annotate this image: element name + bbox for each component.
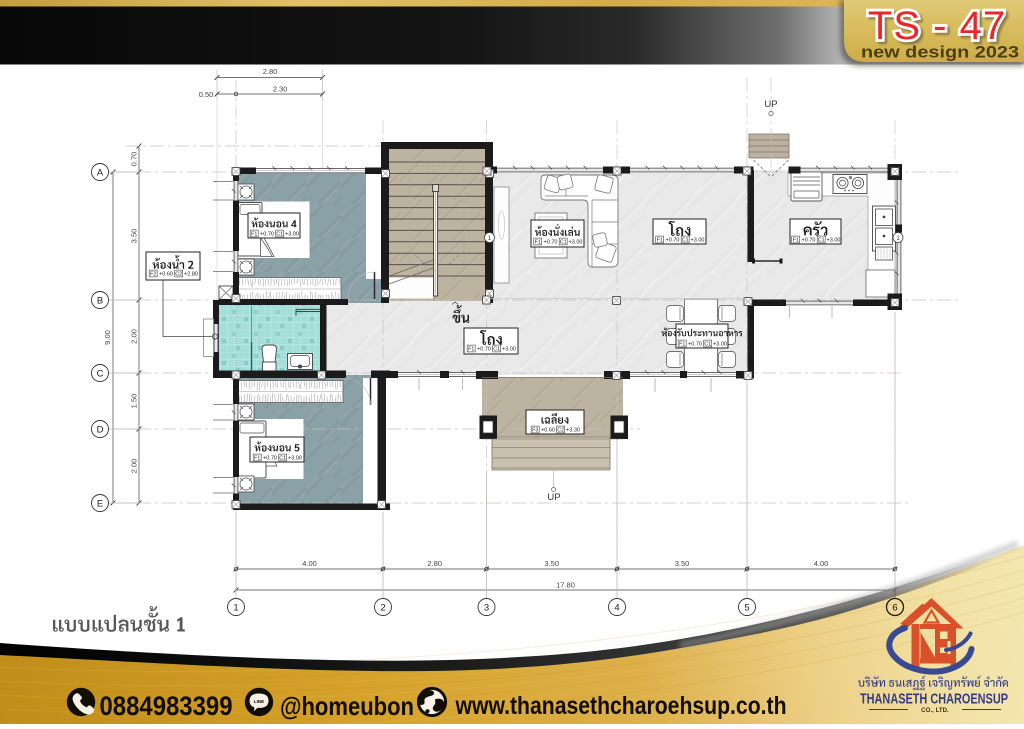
svg-text:+3.00: +3.00 (691, 238, 705, 244)
svg-text:+0.70: +0.70 (260, 232, 274, 238)
svg-text:+0.70: +0.70 (477, 347, 491, 353)
svg-text:+3.00: +3.00 (502, 347, 516, 353)
svg-text:F2: F2 (150, 272, 156, 278)
svg-text:C2: C2 (557, 428, 564, 434)
svg-text:@homeubon: @homeubon (280, 691, 414, 721)
svg-text:4: 4 (614, 602, 619, 613)
svg-text:+3.00: +3.00 (288, 456, 302, 462)
svg-text:+2.80: +2.80 (184, 272, 198, 278)
svg-text:THANASETH CHAROENSUP: THANASETH CHAROENSUP (860, 692, 1008, 708)
svg-text:C1: C1 (276, 232, 283, 238)
svg-text:B: B (97, 295, 103, 306)
svg-text:C1: C1 (682, 238, 689, 244)
svg-text:+3.30: +3.30 (566, 428, 580, 434)
svg-text:TS - 47: TS - 47 (868, 4, 1006, 48)
svg-text:+0.70: +0.70 (666, 238, 680, 244)
svg-text:1: 1 (233, 602, 238, 613)
svg-text:0884983399: 0884983399 (100, 691, 233, 721)
svg-text:F3: F3 (532, 428, 538, 434)
svg-text:www.thanasethcharoehsup.co.th: www.thanasethcharoehsup.co.th (455, 692, 787, 720)
svg-text:F1: F1 (535, 240, 541, 246)
svg-text:4.00: 4.00 (814, 559, 829, 568)
svg-text:C1: C1 (279, 456, 286, 462)
svg-text:9.00: 9.00 (103, 330, 112, 345)
svg-text:+0.60: +0.60 (159, 272, 173, 278)
svg-text:0.50: 0.50 (199, 90, 214, 99)
svg-text:F1: F1 (657, 238, 663, 244)
svg-text:3.50: 3.50 (544, 559, 559, 568)
svg-text:2: 2 (380, 602, 385, 613)
svg-text:F1: F1 (468, 347, 474, 353)
svg-text:F1: F1 (254, 456, 260, 462)
svg-text:2.80: 2.80 (263, 67, 278, 76)
svg-text:+0.70: +0.70 (544, 240, 558, 246)
svg-text:2.80: 2.80 (427, 559, 442, 568)
svg-text:+0.60: +0.60 (541, 428, 555, 434)
svg-text:2.00: 2.00 (130, 329, 139, 344)
svg-text:D: D (97, 424, 104, 435)
svg-text:LINE: LINE (254, 699, 264, 704)
svg-text:6: 6 (892, 602, 897, 613)
svg-text:3.50: 3.50 (130, 229, 139, 244)
svg-text:5: 5 (744, 602, 749, 613)
svg-text:new design 2023: new design 2023 (861, 44, 1019, 62)
svg-text:CO., LTD.: CO., LTD. (921, 707, 949, 714)
svg-text:C1: C1 (704, 342, 711, 348)
svg-text:+3.00: +3.00 (713, 342, 727, 348)
svg-text:C2: C2 (175, 272, 182, 278)
svg-text:UP: UP (764, 99, 777, 110)
svg-text:+3.00: +3.00 (285, 232, 299, 238)
svg-text:0.70: 0.70 (130, 152, 139, 167)
svg-text:C1: C1 (560, 240, 567, 246)
svg-text:A: A (97, 167, 104, 178)
svg-text:E: E (97, 498, 103, 509)
svg-text:2.30: 2.30 (273, 85, 288, 94)
svg-text:2.00: 2.00 (130, 459, 139, 474)
svg-text:+3.00: +3.00 (569, 240, 583, 246)
svg-text:1.50: 1.50 (130, 394, 139, 409)
svg-text:+3.00: +3.00 (827, 238, 841, 244)
svg-text:F1: F1 (793, 238, 799, 244)
svg-text:3: 3 (484, 602, 489, 613)
svg-text:+0.70: +0.70 (688, 342, 702, 348)
svg-text:UP: UP (547, 492, 560, 503)
svg-text:C1: C1 (493, 347, 500, 353)
svg-text:3.50: 3.50 (675, 559, 690, 568)
svg-text:C1: C1 (818, 238, 825, 244)
svg-text:17.80: 17.80 (556, 581, 575, 590)
svg-text:+0.70: +0.70 (263, 456, 277, 462)
svg-text:C: C (97, 368, 104, 379)
svg-text:4.00: 4.00 (302, 559, 317, 568)
svg-text:+0.70: +0.70 (802, 238, 816, 244)
svg-text:F1: F1 (679, 342, 685, 348)
svg-text:F1: F1 (251, 232, 257, 238)
